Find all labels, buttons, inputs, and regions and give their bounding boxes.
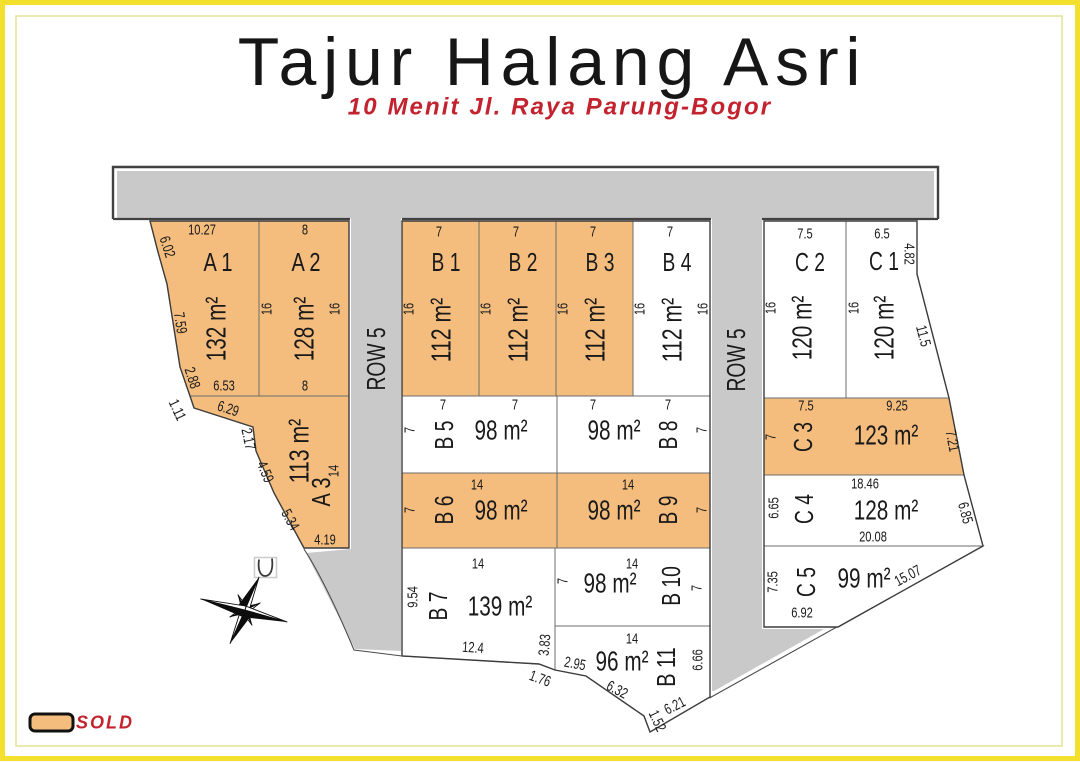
svg-text:16: 16 <box>632 303 649 315</box>
svg-text:16: 16 <box>555 303 572 315</box>
svg-text:7.5: 7.5 <box>798 398 813 415</box>
svg-text:B 7: B 7 <box>423 592 453 621</box>
svg-text:7: 7 <box>689 585 706 591</box>
svg-text:112 m²: 112 m² <box>426 298 457 363</box>
svg-text:98 m²: 98 m² <box>475 415 528 446</box>
svg-text:4.82: 4.82 <box>901 243 918 265</box>
svg-text:C 3: C 3 <box>788 422 818 452</box>
svg-text:16: 16 <box>478 303 495 315</box>
svg-text:C 2: C 2 <box>795 247 825 277</box>
svg-text:18.46: 18.46 <box>851 476 879 493</box>
svg-text:14: 14 <box>622 477 634 494</box>
svg-text:B 4: B 4 <box>663 247 692 277</box>
svg-text:7: 7 <box>694 427 711 433</box>
svg-text:16: 16 <box>763 302 780 314</box>
svg-text:112 m²: 112 m² <box>580 298 611 363</box>
svg-text:14: 14 <box>472 556 484 573</box>
svg-text:7: 7 <box>513 224 519 241</box>
svg-text:7: 7 <box>665 397 671 414</box>
svg-text:123 m²: 123 m² <box>854 420 919 451</box>
svg-text:9.54: 9.54 <box>405 586 422 608</box>
svg-text:7: 7 <box>763 434 780 440</box>
svg-text:16: 16 <box>695 303 712 315</box>
svg-text:99 m²: 99 m² <box>838 563 891 594</box>
svg-text:7.59: 7.59 <box>170 311 190 335</box>
svg-text:120 m²: 120 m² <box>787 296 818 361</box>
svg-text:C 1: C 1 <box>869 246 899 276</box>
svg-text:B 3: B 3 <box>586 247 615 277</box>
svg-text:16: 16 <box>327 303 344 315</box>
svg-text:12.4: 12.4 <box>462 639 485 657</box>
svg-text:B 6: B 6 <box>429 496 459 525</box>
svg-text:6.65: 6.65 <box>766 497 783 519</box>
svg-text:132 m²: 132 m² <box>201 297 232 362</box>
svg-text:112 m²: 112 m² <box>503 298 534 363</box>
svg-text:98 m²: 98 m² <box>588 415 641 446</box>
svg-text:C 5: C 5 <box>791 567 821 597</box>
svg-text:7: 7 <box>694 507 711 513</box>
svg-text:14: 14 <box>326 465 343 477</box>
svg-text:7: 7 <box>402 507 419 513</box>
svg-text:96 m²: 96 m² <box>596 646 649 677</box>
svg-text:B 8: B 8 <box>653 421 683 450</box>
svg-text:128 m²: 128 m² <box>854 495 919 526</box>
svg-text:A 1: A 1 <box>204 247 233 277</box>
svg-text:4.19: 4.19 <box>314 532 336 549</box>
svg-text:16: 16 <box>846 302 863 314</box>
svg-text:20.08: 20.08 <box>859 529 887 546</box>
svg-text:10.27: 10.27 <box>188 222 216 239</box>
svg-text:B 9: B 9 <box>653 496 683 525</box>
svg-text:128 m²: 128 m² <box>289 297 320 362</box>
svg-text:7: 7 <box>512 397 518 414</box>
svg-text:14: 14 <box>471 477 483 494</box>
svg-text:SOLD: SOLD <box>76 713 134 733</box>
svg-text:7.5: 7.5 <box>797 226 812 243</box>
svg-text:6.5: 6.5 <box>874 226 889 243</box>
svg-text:8: 8 <box>302 378 308 395</box>
svg-text:7: 7 <box>436 224 442 241</box>
svg-text:9.25: 9.25 <box>886 398 908 415</box>
svg-text:7: 7 <box>667 224 673 241</box>
svg-text:7: 7 <box>402 427 419 433</box>
svg-text:98 m²: 98 m² <box>584 568 637 599</box>
svg-text:Tajur Halang Asri: Tajur Halang Asri <box>238 24 868 100</box>
svg-text:120 m²: 120 m² <box>869 296 900 361</box>
svg-text:7: 7 <box>590 224 596 241</box>
svg-text:112 m²: 112 m² <box>657 298 688 363</box>
svg-text:8: 8 <box>302 222 308 239</box>
svg-text:7.35: 7.35 <box>765 571 782 593</box>
svg-text:6.92: 6.92 <box>791 605 813 622</box>
svg-text:139 m²: 139 m² <box>468 591 533 622</box>
svg-text:B 5: B 5 <box>429 421 459 450</box>
svg-text:A 2: A 2 <box>292 247 321 277</box>
svg-text:7: 7 <box>590 397 596 414</box>
svg-text:3.83: 3.83 <box>536 634 555 657</box>
svg-text:B 2: B 2 <box>509 247 538 277</box>
svg-text:6.53: 6.53 <box>213 378 235 395</box>
svg-text:98 m²: 98 m² <box>588 495 641 526</box>
svg-text:7: 7 <box>440 397 446 414</box>
svg-text:B 11: B 11 <box>651 647 681 687</box>
svg-text:ROW 5: ROW 5 <box>721 328 751 391</box>
svg-text:B 1: B 1 <box>432 247 461 277</box>
svg-text:6.66: 6.66 <box>690 649 707 671</box>
svg-text:113 m²: 113 m² <box>284 419 315 484</box>
svg-text:7: 7 <box>555 578 572 584</box>
svg-text:16: 16 <box>401 303 418 315</box>
svg-text:C 4: C 4 <box>789 494 819 524</box>
svg-text:10 Menit Jl. Raya Parung-Bogor: 10 Menit Jl. Raya Parung-Bogor <box>348 94 772 121</box>
svg-text:B 10: B 10 <box>656 566 686 606</box>
svg-text:98 m²: 98 m² <box>475 495 528 526</box>
svg-text:ROW 5: ROW 5 <box>361 327 391 390</box>
svg-text:16: 16 <box>259 303 276 315</box>
